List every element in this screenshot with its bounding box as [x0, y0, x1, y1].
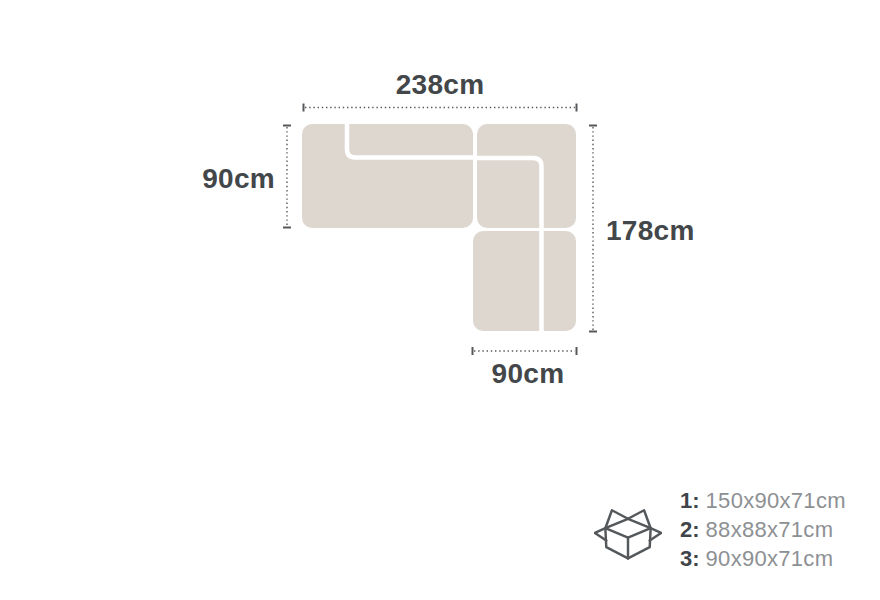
- sofa-section-chaise: [473, 231, 576, 331]
- package-number: 3:: [680, 546, 700, 571]
- package-number: 1:: [680, 488, 700, 513]
- dimension-label-right: 178cm: [606, 214, 695, 248]
- package-item: 3:90x90x71cm: [680, 544, 846, 573]
- open-box-icon: [594, 502, 662, 562]
- package-size: 88x88x71cm: [706, 517, 834, 542]
- package-number: 2:: [680, 517, 700, 542]
- dimension-label-top: 238cm: [360, 68, 520, 102]
- dimension-label-bottom: 90cm: [458, 357, 598, 391]
- package-item: 1:150x90x71cm: [680, 486, 846, 515]
- sofa-section-corner: [477, 124, 576, 228]
- package-size: 90x90x71cm: [706, 546, 834, 571]
- sofa-section-left: [302, 124, 473, 228]
- package-size-list: 1:150x90x71cm 2:88x88x71cm 3:90x90x71cm: [680, 486, 846, 573]
- sofa-dimensions-diagram: 238cm 90cm 178cm 90cm 1:150x90x71cm 2:88…: [0, 0, 880, 600]
- package-item: 2:88x88x71cm: [680, 515, 846, 544]
- package-size: 150x90x71cm: [706, 488, 846, 513]
- dimension-label-left: 90cm: [155, 162, 275, 196]
